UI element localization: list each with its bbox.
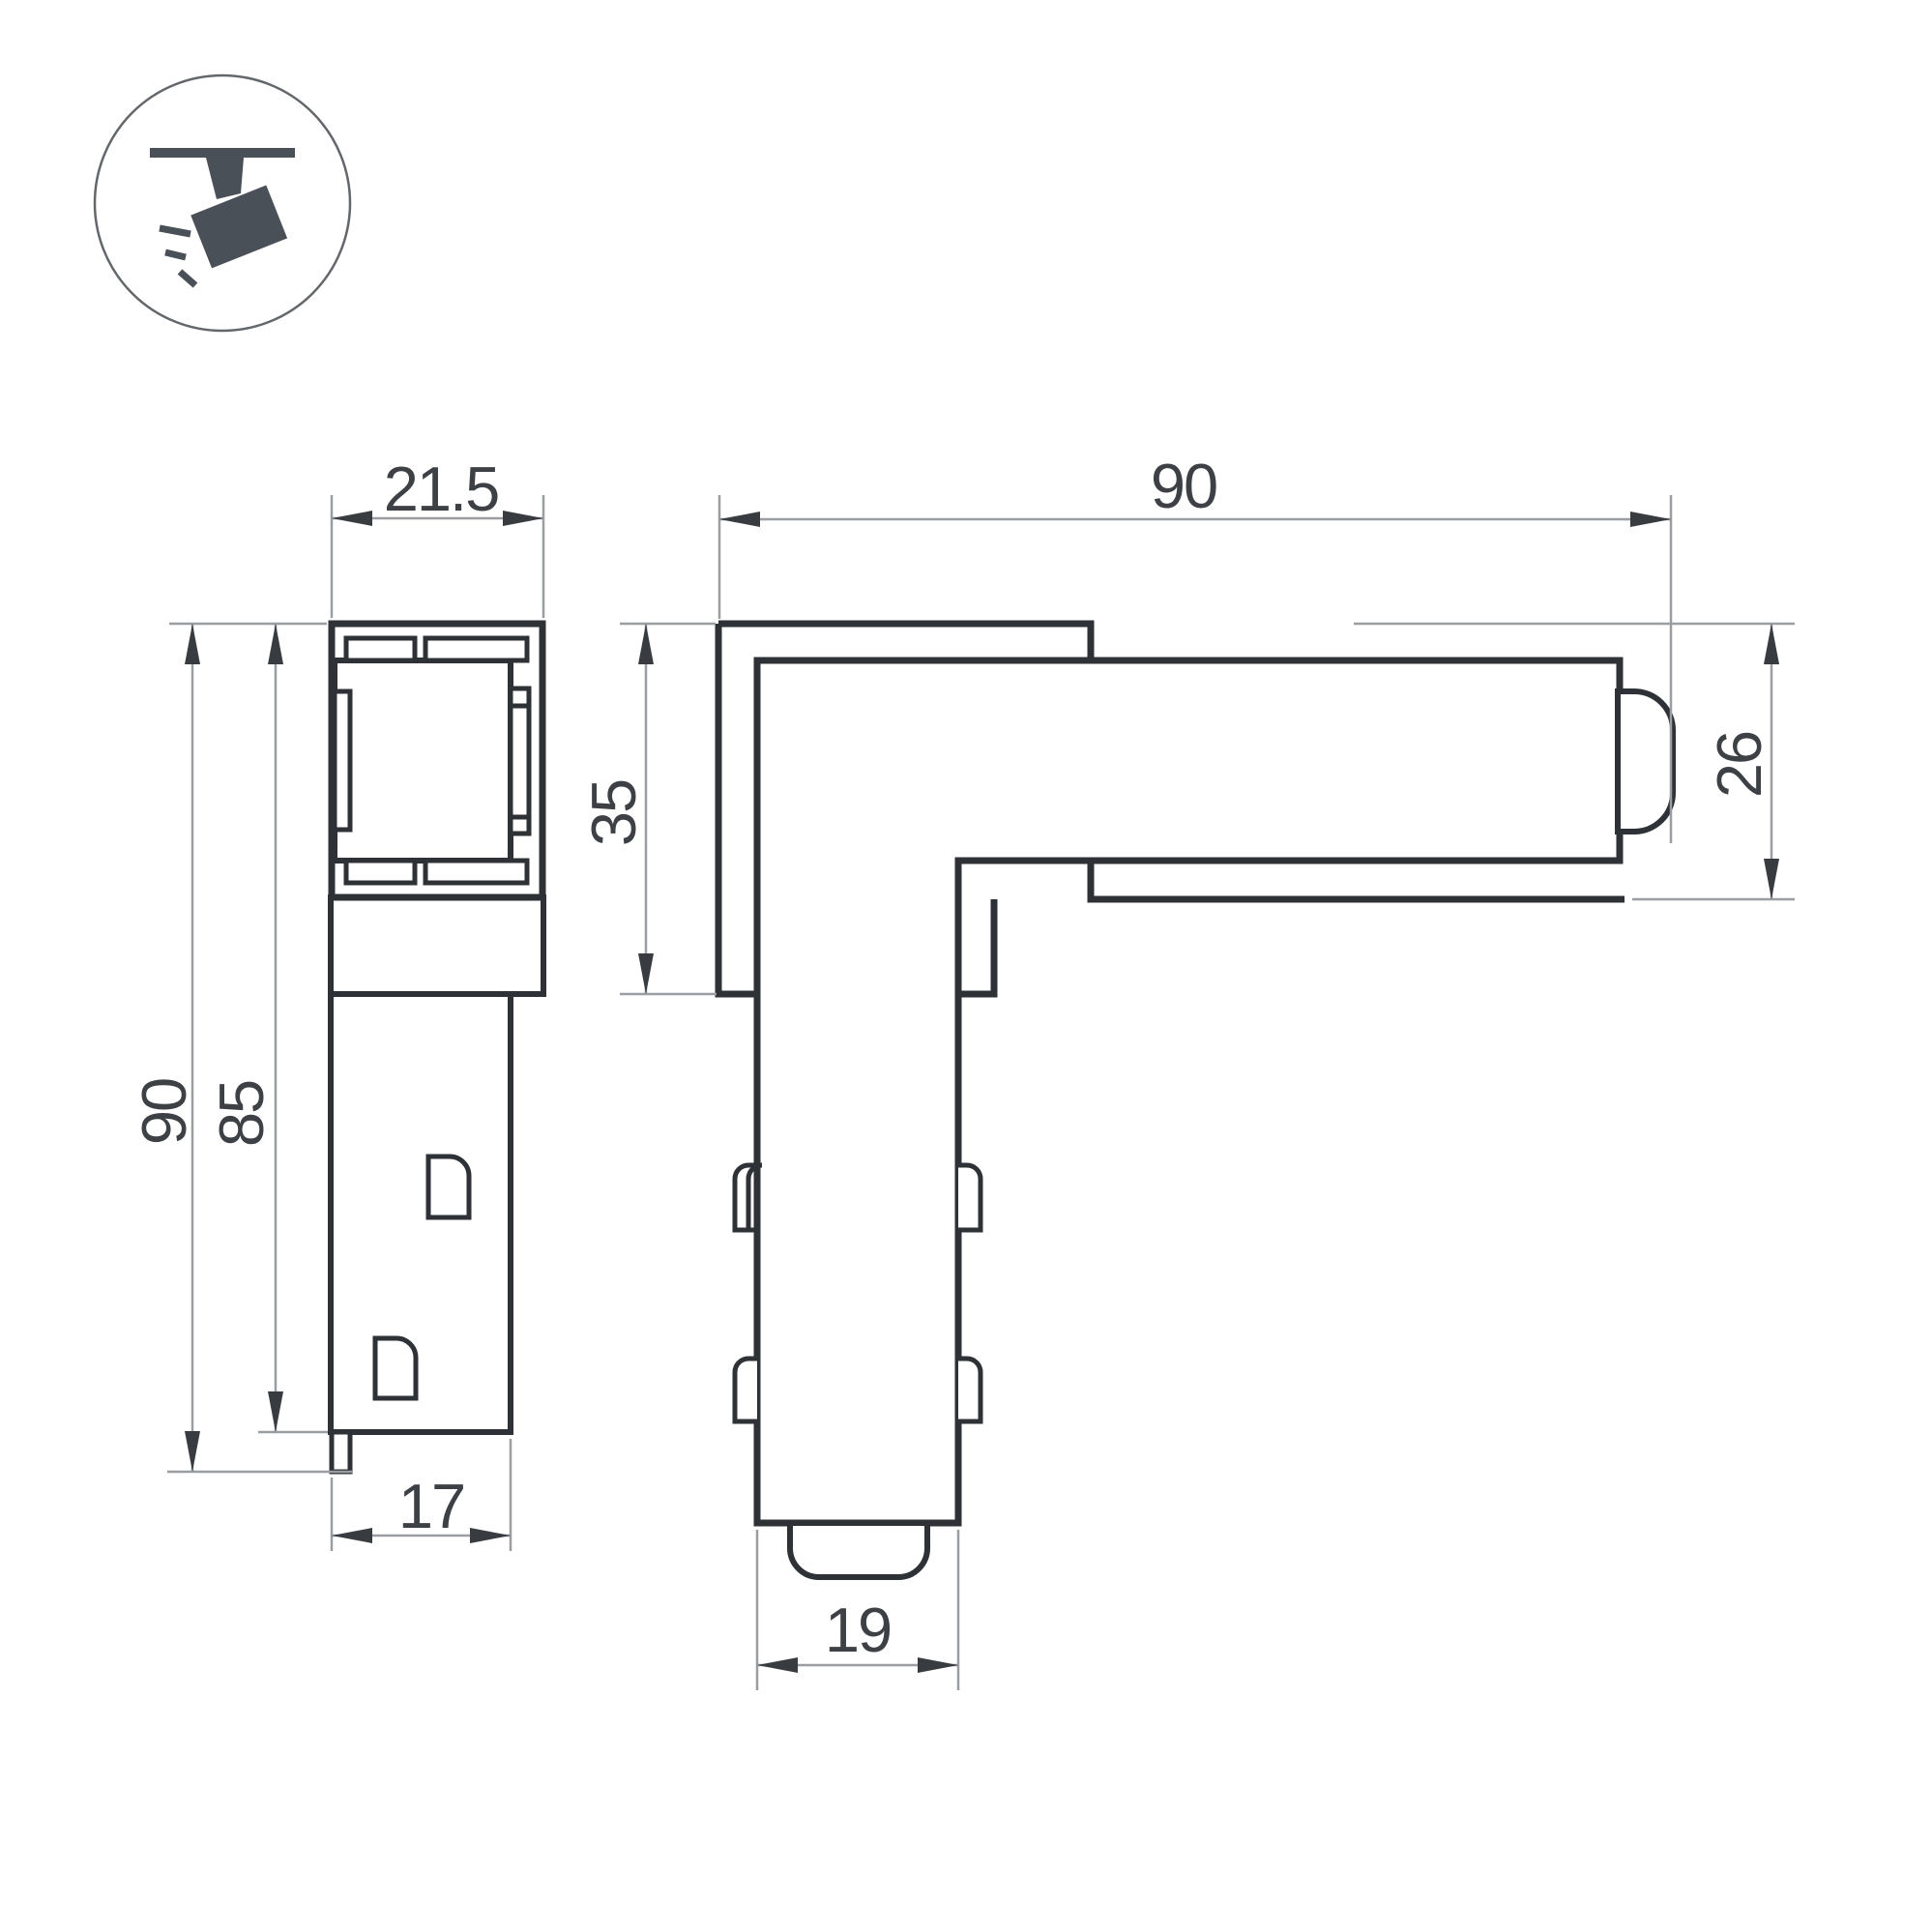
front-total-height-label: 90 (129, 1079, 199, 1145)
arrow (918, 1657, 958, 1673)
arrow (1630, 512, 1671, 527)
track-bar (150, 148, 295, 158)
front-head-cavity (335, 660, 511, 861)
drawing-sheet: 21.5 90 85 17 90 35 26 19 (0, 0, 1932, 1932)
arrow (332, 1528, 372, 1543)
front-clip-upper (428, 1156, 469, 1217)
arrow (638, 953, 654, 994)
front-body-height-label: 85 (206, 1081, 277, 1147)
side-nub-right (1618, 691, 1673, 832)
side-view (718, 624, 1673, 1577)
front-collar (331, 897, 543, 994)
front-head-tab-top-right (425, 638, 527, 660)
arrow (1764, 624, 1779, 664)
side-corner-height-label: 35 (578, 780, 649, 846)
front-head-right-notch-top (511, 688, 529, 706)
front-clip-lower (375, 1338, 416, 1398)
side-clip-lower-left (735, 1359, 757, 1421)
front-head-right-bar (511, 706, 529, 817)
front-head-tab-bottom-left (346, 861, 415, 883)
front-head-tab-bottom-right (425, 861, 527, 883)
arrow (719, 512, 760, 527)
side-clip-upper-left (735, 1165, 762, 1230)
side-clip-upper-right (958, 1165, 981, 1230)
side-clip-lower-right (958, 1359, 981, 1421)
track-spotlight-badge (95, 75, 350, 331)
arrow (268, 624, 283, 664)
arrow (1764, 859, 1779, 899)
arrow (268, 1391, 283, 1432)
arrow (757, 1657, 798, 1673)
arrow (503, 511, 543, 526)
arrow (332, 511, 372, 526)
front-body (331, 994, 511, 1432)
front-top-width-label: 21.5 (384, 454, 499, 524)
side-body (757, 660, 1620, 1523)
front-view (331, 624, 543, 1472)
light-ray (165, 252, 186, 257)
arrow (470, 1528, 511, 1543)
arrow (185, 624, 200, 664)
side-nub-bottom (790, 1523, 927, 1577)
side-leg-width-label: 19 (825, 1595, 891, 1665)
front-head-right-notch-bottom (511, 817, 529, 834)
front-bottom-tab (332, 1432, 350, 1472)
front-bottom-width-label: 17 (398, 1471, 464, 1541)
front-head-left-bar (335, 691, 350, 830)
arrow (185, 1431, 200, 1472)
side-length-label: 90 (1151, 451, 1216, 521)
front-head-tab-top-left (346, 638, 415, 660)
arrow (638, 624, 654, 664)
side-plate-height-label: 26 (1704, 732, 1774, 798)
